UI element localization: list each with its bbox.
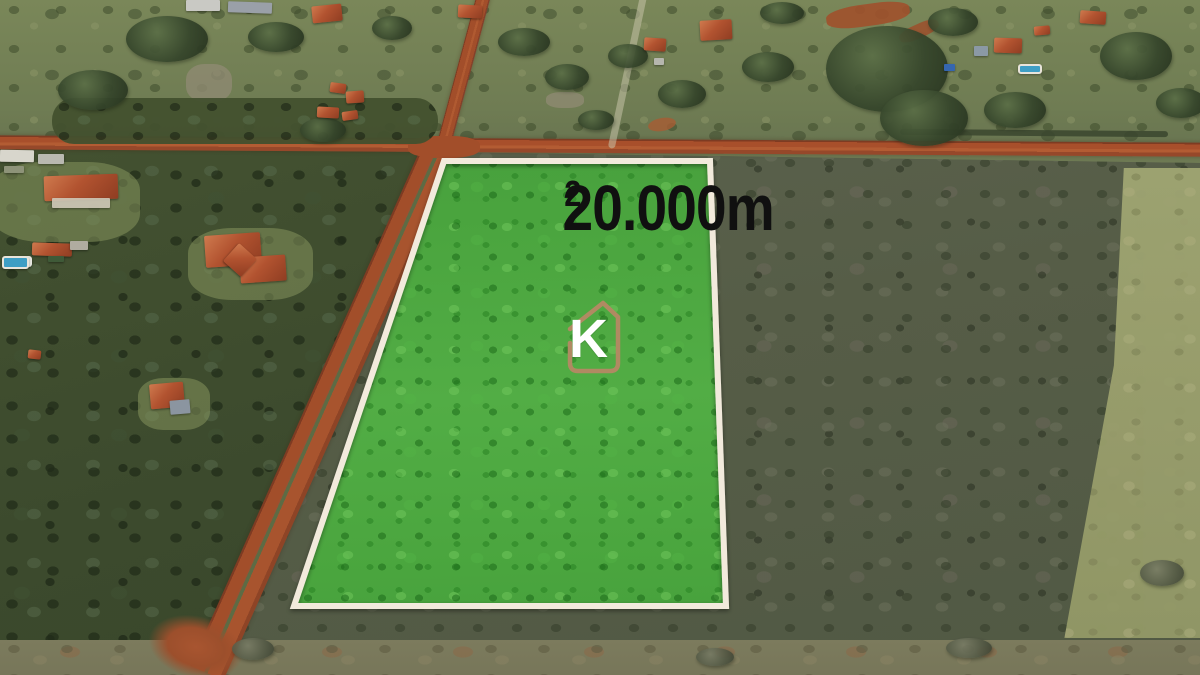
area-value: 20.000m <box>563 176 774 240</box>
area-label: 20.000m2 <box>443 176 701 240</box>
aerial-photo: 20.000m2 K <box>0 0 1200 675</box>
area-exponent: 2 <box>564 176 581 212</box>
brand-logo: K <box>561 295 625 379</box>
logo-letter: K <box>569 312 608 366</box>
